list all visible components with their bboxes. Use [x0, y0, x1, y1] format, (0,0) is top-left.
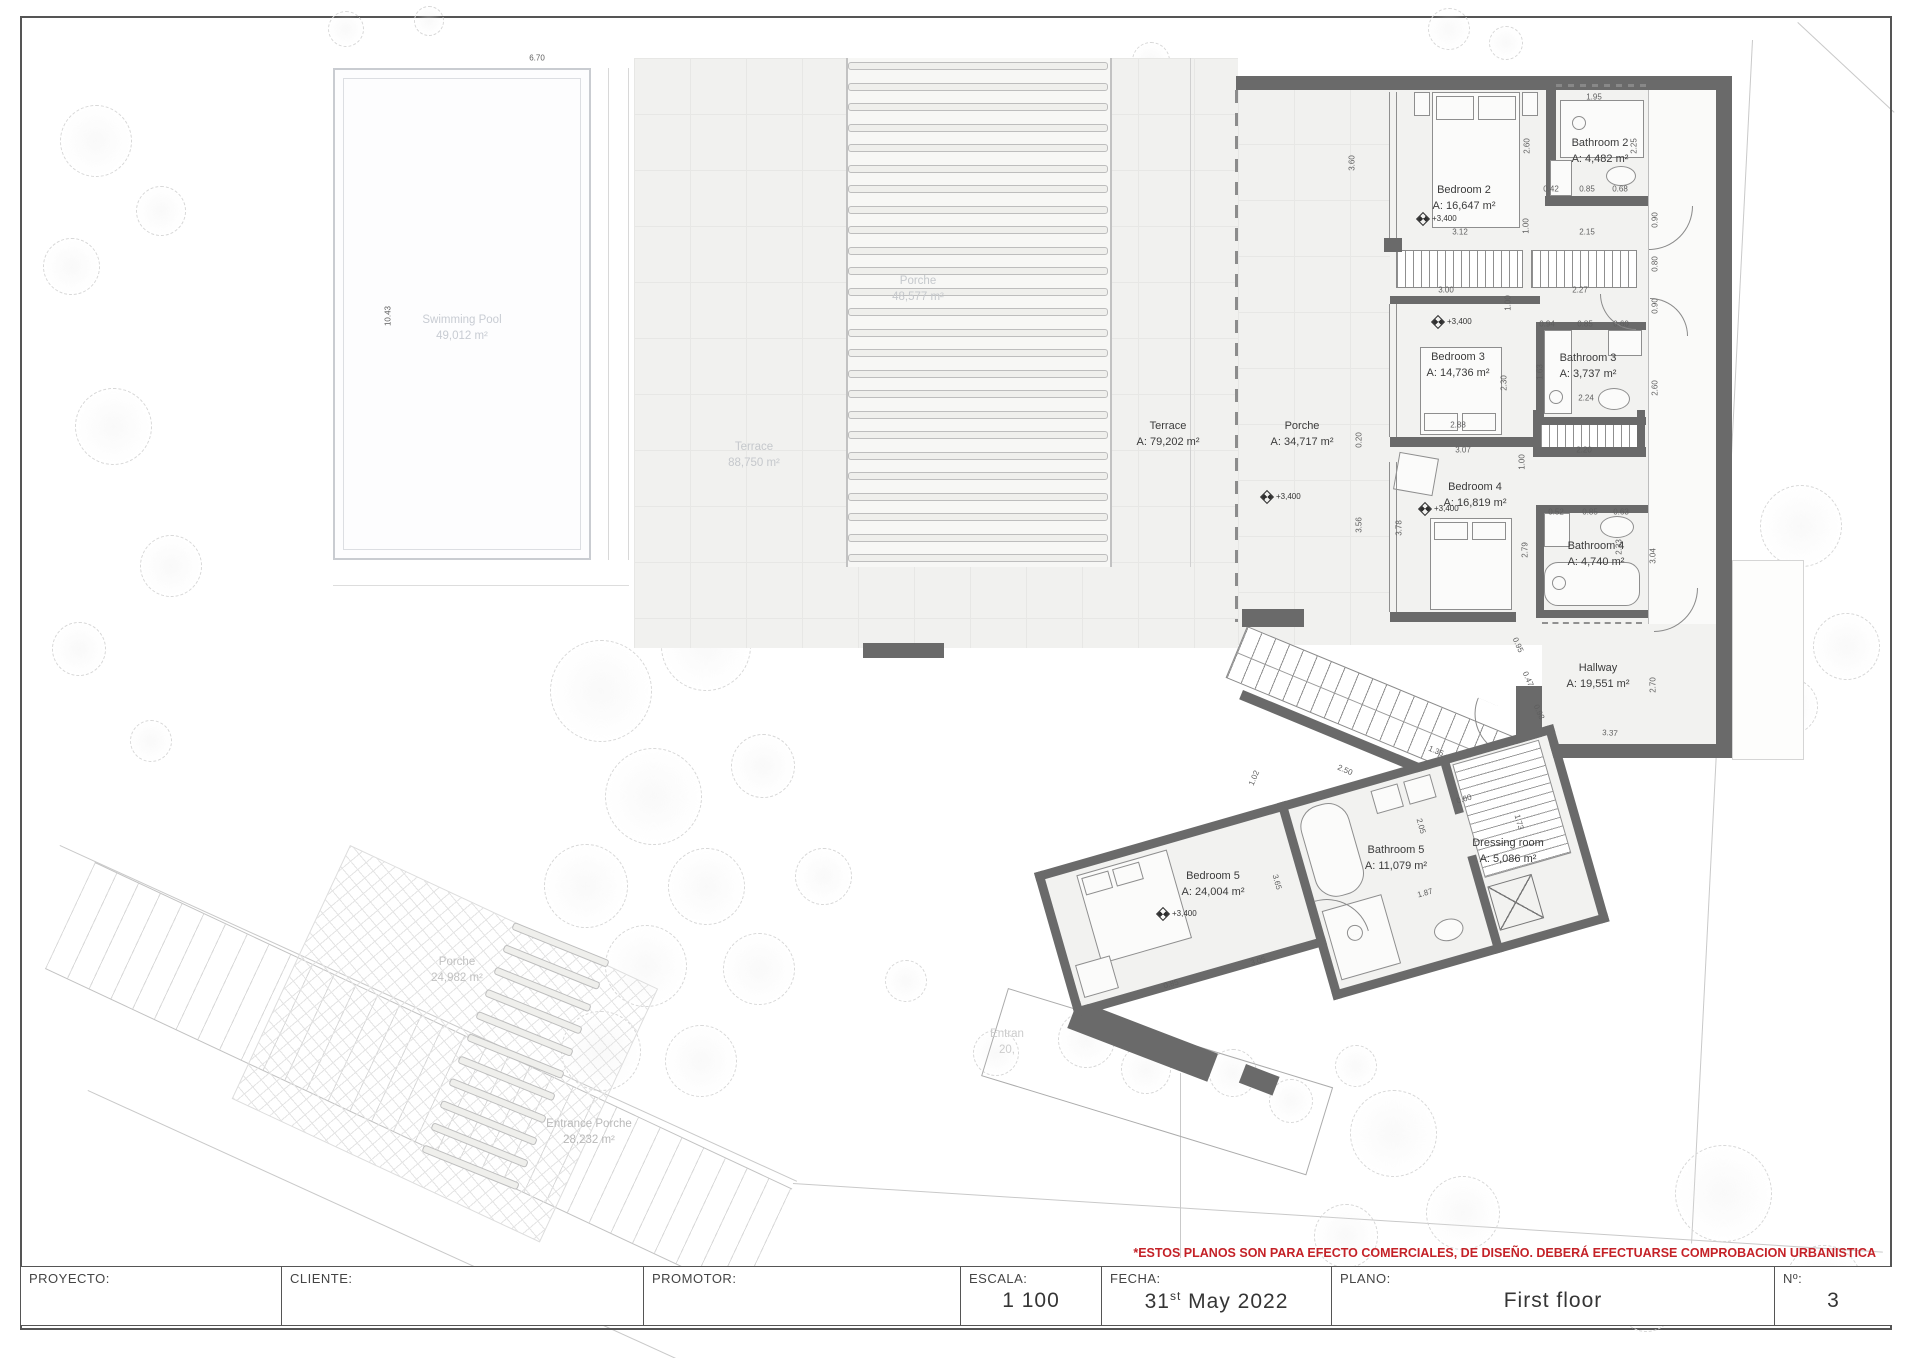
tree-icon — [136, 186, 186, 236]
tree-icon — [1489, 26, 1523, 60]
dimension-label: 0.94 — [1539, 320, 1555, 329]
dimension-label: 3.04 — [1649, 548, 1658, 564]
plano-value: First floor — [1332, 1289, 1774, 1313]
tree-icon — [723, 933, 795, 1005]
level-marker-icon — [1156, 907, 1170, 921]
pergola-slat — [848, 103, 1108, 111]
level-marker: +3,400 — [1158, 905, 1197, 923]
title-cell-escala: ESCALA: 1 100 — [961, 1267, 1102, 1325]
dimension-label: 0.20 — [1355, 432, 1364, 448]
tree-icon — [1350, 1090, 1437, 1177]
wall — [1542, 744, 1732, 758]
terrace-porche-divider — [1235, 90, 1238, 622]
room-label-terrace: TerraceA: 79,202 m² — [1137, 418, 1200, 450]
dimension-label: 3.78 — [1395, 520, 1404, 536]
level-marker: +3,400 — [1420, 500, 1459, 518]
tree-icon — [885, 960, 927, 1002]
escala-value: 1 100 — [961, 1289, 1101, 1313]
pergola-slat — [848, 144, 1108, 152]
wall — [1716, 76, 1732, 758]
rear-terrace-floor — [1732, 560, 1804, 760]
window-line — [1389, 92, 1390, 238]
site-label-entrance-porche: Entrance Porche28,232 m² — [546, 1116, 632, 1148]
cliente-label: CLIENTE: — [290, 1271, 353, 1286]
dimension-label: 2.60 — [1651, 380, 1660, 396]
stair-treads — [1531, 250, 1637, 288]
window-line — [1396, 462, 1397, 612]
dimension-label: 1.95 — [1586, 93, 1602, 102]
pergola-slat — [848, 493, 1108, 501]
drain-symbol — [1572, 116, 1586, 130]
dimension-label: 2.60 — [1523, 138, 1532, 154]
pool-deck-line — [628, 68, 629, 560]
level-marker-icon — [1431, 315, 1445, 329]
pergola-slat — [848, 329, 1108, 337]
pergola-slat — [848, 62, 1108, 70]
pergola-slat — [848, 411, 1108, 419]
level-marker: +3,400 — [1262, 488, 1301, 506]
tree-icon — [328, 11, 364, 47]
room-label-bathroom-2: Bathroom 2A: 4,482 m² — [1572, 135, 1629, 167]
wall — [1536, 417, 1646, 425]
wall — [1384, 238, 1402, 252]
room-label-dressing-room: Dressing roomA: 5,086 m² — [1472, 835, 1544, 867]
pergola-slat — [848, 206, 1108, 214]
dimension-label: 3.12 — [1452, 228, 1468, 237]
floor-plan-sheet: Bedroom 2A: 16,647 m² Bathroom 2A: 4,482… — [0, 0, 1920, 1358]
pergola-slat — [848, 534, 1108, 542]
dimension-label: 2.70 — [1649, 677, 1658, 693]
drain-symbol — [1549, 390, 1563, 404]
dimension-label: 0.90 — [1651, 212, 1660, 228]
tree-icon — [52, 622, 106, 676]
dimension-label: 0.85 — [1577, 320, 1593, 329]
title-cell-fecha: FECHA: 31st May 2022 — [1102, 1267, 1332, 1325]
tree-icon — [1426, 1176, 1500, 1250]
room-label-porche: PorcheA: 34,717 m² — [1271, 418, 1334, 450]
pergola-beam — [846, 58, 848, 567]
stair-treads — [1396, 250, 1523, 288]
wall — [1390, 612, 1516, 622]
tree-icon — [1675, 1145, 1772, 1242]
tree-icon — [130, 720, 172, 762]
pergola-slat — [848, 83, 1108, 91]
level-value: +3,400 — [1447, 317, 1472, 326]
armchair-symbol — [1393, 452, 1439, 496]
pillow-symbol — [1472, 522, 1506, 540]
dimension-label: 1.00 — [1504, 295, 1513, 311]
pergola-slat — [848, 165, 1108, 173]
site-label-swimming-pool: Swimming Pool49,012 m² — [422, 312, 501, 344]
dimension-label: 0.52 — [1548, 508, 1564, 517]
toilet-symbol — [1598, 388, 1630, 410]
tree-icon — [1760, 485, 1842, 567]
tree-icon — [60, 105, 132, 177]
level-value: +3,400 — [1434, 504, 1459, 513]
proyecto-label: PROYECTO: — [29, 1271, 110, 1286]
escala-label: ESCALA: — [969, 1271, 1027, 1286]
dimension-label: 2.30 — [1500, 375, 1509, 391]
tree-icon — [668, 848, 745, 925]
level-marker-icon — [1260, 490, 1274, 504]
dimension-label: 0.42 — [1543, 185, 1559, 194]
dimension-label: 1.00 — [1522, 218, 1531, 234]
pergola-slat — [848, 370, 1108, 378]
window-hatch — [1556, 84, 1646, 87]
title-cell-promotor: PROMOTOR: — [644, 1267, 961, 1325]
dimension-label: 2.27 — [1572, 286, 1588, 295]
fecha-label: FECHA: — [1110, 1271, 1161, 1286]
title-cell-proyecto: PROYECTO: — [21, 1267, 282, 1325]
title-block: PROYECTO: CLIENTE: PROMOTOR: ESCALA: 1 1… — [21, 1266, 1892, 1326]
tree-icon — [414, 6, 444, 36]
tree-icon — [43, 238, 100, 295]
room-label-bathroom-3: Bathroom 3A: 3,737 m² — [1560, 350, 1617, 382]
window-line — [1389, 304, 1390, 437]
dimension-label: 3.07 — [1455, 446, 1471, 455]
tree-icon — [544, 844, 628, 928]
pergola-slat — [848, 267, 1108, 275]
dimension-label: 0.90 — [1651, 298, 1660, 314]
pergola-slat — [848, 226, 1108, 234]
title-cell-plano: PLANO: First floor — [1332, 1267, 1775, 1325]
dimension-label: 0.80 — [1651, 256, 1660, 272]
pergola-slat — [848, 288, 1108, 296]
window-line — [1396, 92, 1397, 238]
dimension-label: 2.15 — [1579, 228, 1595, 237]
tree-icon — [550, 640, 652, 742]
pergola-slat — [848, 124, 1108, 132]
pergola-slat — [848, 554, 1108, 562]
plano-label: PLANO: — [1340, 1271, 1391, 1286]
level-value: +3,400 — [1276, 492, 1301, 501]
tree-icon — [731, 734, 795, 798]
dimension-label: 0.60 — [1613, 320, 1629, 329]
pergola-slat — [848, 390, 1108, 398]
pillow-symbol — [1434, 522, 1468, 540]
stair-treads — [1540, 424, 1638, 448]
site-label-porche-tiled: Porche24,982 m² — [431, 954, 483, 986]
nightstand-symbol — [1414, 92, 1430, 116]
dimension-label: 2.20 — [1576, 446, 1592, 455]
wall — [1390, 296, 1540, 304]
window-hatch — [1542, 622, 1642, 624]
wall — [1533, 410, 1541, 450]
dimension-label: 6.70 — [529, 54, 545, 63]
dimension-label: 1.00 — [1518, 454, 1527, 470]
tree-icon — [140, 535, 202, 597]
wall — [1536, 610, 1648, 618]
room-label-bathroom-5: Bathroom 5A: 11,079 m² — [1365, 842, 1427, 874]
dimension-label: 3.60 — [1348, 155, 1357, 171]
tree-icon — [605, 748, 702, 845]
sink-symbol — [1544, 513, 1570, 547]
pergola-slat — [848, 308, 1108, 316]
pool-deck-line — [608, 68, 609, 560]
dimension-label: 0.68 — [1612, 185, 1628, 194]
pergola-slat — [848, 472, 1108, 480]
pillow-symbol — [1436, 96, 1474, 120]
room-label-bedroom-3: Bedroom 3A: 14,736 m² — [1427, 349, 1490, 381]
porche-floor — [1238, 88, 1390, 645]
wall — [1236, 76, 1732, 90]
dimension-label: 2.24 — [1578, 394, 1594, 403]
tree-icon — [1335, 1045, 1377, 1087]
dimension-label: 10.43 — [384, 306, 393, 326]
site-label-terrace: Terrace88,750 m² — [728, 439, 780, 471]
level-marker: +3,400 — [1433, 313, 1472, 331]
title-cell-numero: Nº: 3 — [1775, 1267, 1892, 1325]
pergola-slat — [848, 452, 1108, 460]
nightstand-symbol — [1522, 92, 1538, 116]
dimension-label: 2.88 — [1450, 421, 1466, 430]
side-terrace-floor — [1648, 88, 1716, 645]
wall — [1242, 609, 1304, 627]
tree-icon — [75, 388, 152, 465]
dimension-label: 2.25 — [1630, 138, 1639, 154]
pergola-slat — [848, 185, 1108, 193]
pergola-area — [846, 58, 1112, 567]
toilet-symbol — [1600, 516, 1634, 538]
site-label-porche-pergola: Porche48,577 m² — [892, 273, 944, 305]
level-value: +3,400 — [1172, 909, 1197, 918]
dimension-label: 2.79 — [1521, 542, 1530, 558]
pillow-symbol — [1462, 413, 1496, 431]
drain-symbol — [1552, 576, 1566, 590]
promotor-label: PROMOTOR: — [652, 1271, 736, 1286]
dimension-label: 2.33 — [1615, 539, 1624, 555]
wall — [1536, 505, 1544, 618]
title-cell-cliente: CLIENTE: — [282, 1267, 644, 1325]
pergola-slat — [848, 247, 1108, 255]
pergola-beam — [1110, 58, 1112, 567]
dimension-label: 3.37 — [1602, 728, 1618, 738]
site-label-entrance-partial: Entran20, — [990, 1026, 1024, 1058]
window-line — [1389, 462, 1390, 612]
pergola-slat — [848, 431, 1108, 439]
dimension-label: 3.56 — [1355, 517, 1364, 533]
disclaimer-text: *ESTOS PLANOS SON PARA EFECTO COMERCIALE… — [1133, 1246, 1876, 1260]
tree-icon — [1428, 8, 1470, 50]
dimension-label: 0.63 — [1613, 508, 1629, 517]
level-marker-icon — [1418, 502, 1432, 516]
numero-value: 3 — [1775, 1289, 1892, 1313]
toilet-symbol — [1606, 166, 1636, 186]
pergola-slat — [848, 513, 1108, 521]
level-value: +3,400 — [1432, 214, 1457, 223]
wall — [1637, 410, 1645, 450]
window-line — [1396, 304, 1397, 437]
numero-label: Nº: — [1783, 1271, 1802, 1286]
wall — [1545, 196, 1648, 206]
dimension-label: 0.85 — [1579, 185, 1595, 194]
wall — [863, 643, 944, 658]
pergola-slat — [848, 349, 1108, 357]
pillow-symbol — [1478, 96, 1516, 120]
pool-deck-line — [333, 585, 629, 586]
tree-icon — [665, 1025, 737, 1097]
tree-icon — [795, 848, 852, 905]
dimension-label: 3.00 — [1438, 286, 1454, 295]
room-label-hallway: HallwayA: 19,551 m² — [1567, 660, 1630, 692]
fecha-value: 31st May 2022 — [1102, 1289, 1331, 1314]
level-marker: +3,400 — [1418, 210, 1457, 228]
room-label-bedroom-5: Bedroom 5A: 24,004 m² — [1182, 868, 1245, 900]
tree-icon — [1813, 613, 1880, 680]
garden-strip-line — [1190, 58, 1191, 567]
dimension-label: 1.63 — [1536, 364, 1545, 380]
dimension-label: 0.85 — [1582, 508, 1598, 517]
level-marker-icon — [1416, 212, 1430, 226]
